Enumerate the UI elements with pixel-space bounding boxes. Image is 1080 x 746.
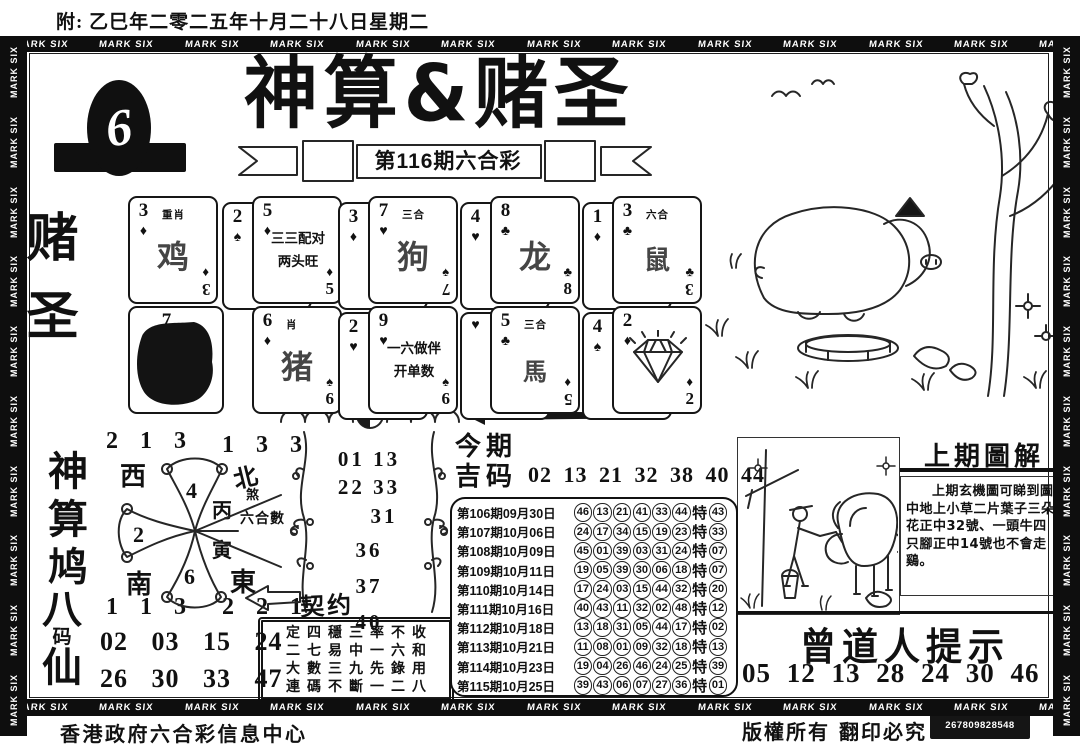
- mark-six-label: MARK SIX: [1062, 255, 1072, 307]
- result-number: 08: [593, 638, 612, 657]
- result-number: 24: [574, 523, 593, 542]
- mark-six-label: MARK SIX: [99, 39, 155, 50]
- result-row: 第113期10月21日110801093218特13: [457, 637, 733, 656]
- playing-card: 6♦ 肖 猪 ♠6: [252, 306, 342, 414]
- result-row: 第108期10月09日450139033124特07: [457, 541, 733, 560]
- result-number: 18: [593, 618, 612, 637]
- front-card: 5♣ 三合 馬 ♦5: [490, 306, 580, 414]
- result-number: 32: [633, 599, 652, 618]
- result-number: 32: [652, 638, 671, 657]
- result-special-number: 01: [709, 676, 728, 695]
- playing-card: 7: [128, 306, 224, 414]
- club-suit-icon: ♣: [623, 223, 632, 237]
- scroll-number-line: 31: [316, 504, 422, 529]
- result-special-number: 39: [709, 657, 728, 676]
- mark-six-label: MARK SIX: [9, 604, 19, 656]
- result-number: 03: [613, 580, 632, 599]
- result-number: 24: [593, 580, 612, 599]
- mark-six-label: MARK SIX: [9, 255, 19, 307]
- result-period: 第109期10月11日: [457, 561, 573, 580]
- result-number: 18: [672, 561, 691, 580]
- result-number: 33: [652, 503, 671, 522]
- heart-suit-icon: ♥: [471, 229, 479, 243]
- results-rows: 第106期09月30日461321413344特43第107期10月06日241…: [457, 503, 733, 695]
- special-label: 特: [692, 540, 707, 561]
- card-note: 三合: [402, 207, 425, 222]
- result-number: 43: [593, 676, 612, 695]
- footer-code: 267809828548: [945, 720, 1014, 731]
- club-suit-icon: ♣: [501, 333, 510, 347]
- pig-tree-sketch: [688, 56, 1066, 406]
- result-number: 36: [672, 676, 691, 695]
- result-number: 17: [672, 618, 691, 637]
- result-row: 第109期10月11日190539300618特07: [457, 561, 733, 580]
- result-number: 44: [652, 618, 671, 637]
- newspaper-page: 附: 乙巳年二零二五年十月二十八日星期二 MARK SIXMARK SIXMAR…: [0, 0, 1080, 746]
- result-number: 11: [613, 599, 632, 618]
- last-issue-underline: [900, 468, 1063, 472]
- mark-six-band-bottom: MARK SIXMARK SIXMARK SIXMARK SIXMARK SIX…: [0, 699, 1080, 716]
- mark-six-label: MARK SIX: [868, 702, 924, 713]
- front-card: 7♥ 三合 狗 ♠7: [368, 196, 458, 304]
- result-special-number: 07: [709, 542, 728, 561]
- result-period: 第110期10月14日: [457, 580, 573, 599]
- result-row: 第114期10月23日190426462425特39: [457, 657, 733, 676]
- front-card: 9♥ 一六做伴开单数 ♠6: [368, 306, 458, 414]
- plum-branch-icon: [420, 430, 450, 614]
- master-tip-numbers: 05 12 13 28 24 30 46: [742, 658, 1042, 689]
- ink-blot: [134, 316, 218, 408]
- contract-box: 定四穩三率不收二七易中一六和大數三九先錄用連碼不斷一二八: [258, 617, 454, 703]
- mark-six-label: MARK SIX: [270, 39, 326, 50]
- result-number: 19: [574, 561, 593, 580]
- logo-number: 6: [102, 97, 136, 159]
- mark-six-label: MARK SIX: [1062, 116, 1072, 168]
- mark-six-label: MARK SIX: [9, 325, 19, 377]
- mark-six-label: MARK SIX: [1062, 674, 1072, 726]
- result-number: 44: [652, 580, 671, 599]
- card-rat: 1♦ 3♣ 六合 鼠 ♣3: [582, 196, 700, 306]
- result-period: 第114期10月23日: [457, 657, 573, 676]
- heart-suit-icon: ♥: [349, 339, 357, 353]
- mark-six-label: MARK SIX: [441, 39, 497, 50]
- special-label: 特: [692, 502, 707, 523]
- result-number: 31: [652, 542, 671, 561]
- card-note: 六合: [646, 207, 669, 222]
- result-number: 13: [593, 503, 612, 522]
- result-number: 18: [672, 638, 691, 657]
- spade-suit-icon: ♠: [594, 339, 601, 353]
- card-horse: ♥ 5♣ 三合 馬 ♦5: [460, 306, 578, 416]
- scroll-number-line: 22 33: [316, 475, 422, 500]
- diamond-gem-icon: [626, 330, 690, 388]
- eight-code-row1: 02 03 15 24: [100, 627, 283, 657]
- card-diamond: 4♠ 2♦ ♦2: [582, 306, 700, 416]
- mark-six-label: MARK SIX: [612, 702, 668, 713]
- contract-row: 大數三九先錄用: [263, 660, 449, 678]
- mark-six-label: MARK SIX: [953, 702, 1009, 713]
- result-number: 11: [574, 638, 593, 657]
- result-number: 44: [672, 503, 691, 522]
- card-note: 肖: [286, 317, 298, 332]
- mark-six-band-top: MARK SIXMARK SIXMARK SIXMARK SIXMARK SIX…: [0, 36, 1080, 52]
- mark-six-label: MARK SIX: [783, 39, 839, 50]
- mark-six-label: MARK SIX: [1062, 325, 1072, 377]
- contract-row: 二七易中一六和: [263, 642, 449, 660]
- side-label-shensuan: 神算鸠: [40, 450, 88, 594]
- side-label-xian: 仙: [32, 648, 92, 688]
- playing-card: 3♦ 重肖 鸡 ♦3: [128, 196, 218, 304]
- result-number: 39: [613, 542, 632, 561]
- side-label-ba: 八: [32, 592, 92, 628]
- card-dog: 3♦ 7♥ 三合 狗 ♠7: [338, 196, 456, 306]
- last-issue-body: 上期玄機圖可睇到圖中地上小草二片葉子三朵花正中32號、一頭牛四只腳正中14號也不…: [906, 483, 1056, 571]
- front-card: 2♦ ♦2: [612, 306, 702, 414]
- mark-six-label: MARK SIX: [953, 39, 1009, 50]
- result-special-number: 02: [709, 618, 728, 637]
- contract-row: 定四穩三率不收: [263, 624, 449, 642]
- result-number: 19: [652, 523, 671, 542]
- special-label: 特: [692, 675, 707, 696]
- special-label: 特: [692, 560, 707, 581]
- result-number: 17: [574, 580, 593, 599]
- result-number: 41: [633, 503, 652, 522]
- mark-six-label: MARK SIX: [697, 39, 753, 50]
- result-number: 19: [574, 657, 593, 676]
- diamond-suit-icon: ♦: [594, 229, 601, 243]
- result-number: 13: [574, 618, 593, 637]
- result-number: 01: [613, 638, 632, 657]
- result-number: 05: [593, 561, 612, 580]
- result-number: 32: [672, 580, 691, 599]
- result-special-number: 13: [709, 638, 728, 657]
- result-number: 26: [613, 657, 632, 676]
- contract-row: 連碼不斷一二八: [263, 678, 449, 696]
- side-label-bamaxian: 八 码 仙: [32, 592, 92, 688]
- scroll-number-line: 01 13: [316, 447, 422, 472]
- mark-six-label: MARK SIX: [697, 702, 753, 713]
- result-row: 第111期10月16日404311320248特12: [457, 599, 733, 618]
- result-number: 05: [633, 618, 652, 637]
- result-period: 第115期10月25日: [457, 676, 573, 695]
- result-number: 46: [633, 657, 652, 676]
- front-card: 8♣ 龙 ♣8: [490, 196, 580, 304]
- result-number: 09: [633, 638, 652, 657]
- mark-six-label: MARK SIX: [783, 702, 839, 713]
- results-box: 第106期09月30日461321413344特43第107期10月06日241…: [450, 497, 738, 697]
- mark-six-label: MARK SIX: [184, 39, 240, 50]
- result-number: 30: [633, 561, 652, 580]
- card-bottom-index: ♦3: [202, 265, 211, 299]
- result-special-number: 12: [709, 599, 728, 618]
- lucky-numbers: 02 13 21 32 38 40 44: [528, 462, 765, 488]
- mark-six-label: MARK SIX: [355, 702, 411, 713]
- mark-six-label: MARK SIX: [612, 39, 668, 50]
- card-pig-card: 6♦ 肖 猪 ♠6: [252, 306, 342, 414]
- result-period: 第107期10月06日: [457, 522, 573, 541]
- mark-six-label: MARK SIX: [868, 39, 924, 50]
- result-number: 03: [633, 542, 652, 561]
- result-special-number: 20: [709, 580, 728, 599]
- result-number: 31: [613, 618, 632, 637]
- eight-code-row2: 26 30 33 47: [100, 664, 283, 694]
- result-number: 24: [652, 657, 671, 676]
- result-number: 45: [574, 542, 593, 561]
- card-note: 三合: [524, 317, 547, 332]
- result-period: 第108期10月09日: [457, 541, 573, 560]
- result-period: 第113期10月21日: [457, 637, 573, 656]
- special-label: 特: [692, 656, 707, 677]
- mark-six-label: MARK SIX: [9, 395, 19, 447]
- result-row: 第110期10月14日172403154432特20: [457, 580, 733, 599]
- mark-six-label: MARK SIX: [1062, 395, 1072, 447]
- result-row: 第112期10月18日131831054417特02: [457, 618, 733, 637]
- result-row: 第106期09月30日461321413344特43: [457, 503, 733, 522]
- result-number: 40: [574, 599, 593, 618]
- result-period: 第111期10月16日: [457, 599, 573, 618]
- result-number: 48: [672, 599, 691, 618]
- side-label-dusheng: 赌圣: [30, 210, 86, 366]
- result-number: 23: [672, 523, 691, 542]
- card-pair-16: 2♥ 9♥ 一六做伴开单数 ♠6: [338, 306, 456, 416]
- result-special-number: 33: [709, 523, 728, 542]
- result-period: 第112期10月18日: [457, 618, 573, 637]
- result-row: 第115期10月25日394306072736特01: [457, 676, 733, 695]
- diamond-suit-icon: ♦: [350, 229, 357, 243]
- special-label: 特: [692, 579, 707, 600]
- result-number: 15: [633, 523, 652, 542]
- result-number: 02: [652, 599, 671, 618]
- result-number: 06: [613, 676, 632, 695]
- footer-code-block: 267809828548: [930, 712, 1030, 739]
- mark-six-label: MARK SIX: [184, 702, 240, 713]
- tip-divider: [737, 611, 1065, 614]
- mark-six-label: MARK SIX: [9, 116, 19, 168]
- mark-six-label: MARK SIX: [441, 702, 497, 713]
- result-number: 01: [593, 542, 612, 561]
- result-number: 07: [633, 676, 652, 695]
- special-label: 特: [692, 521, 707, 542]
- special-label: 特: [692, 636, 707, 657]
- result-special-number: 07: [709, 561, 728, 580]
- mark-six-label: MARK SIX: [9, 674, 19, 726]
- mark-six-label: MARK SIX: [99, 702, 155, 713]
- result-number: 17: [593, 523, 612, 542]
- compass-flower: [103, 443, 288, 628]
- result-number: 39: [613, 561, 632, 580]
- special-label: 特: [692, 617, 707, 638]
- heart-suit-icon: ♥: [471, 317, 479, 331]
- result-row: 第107期10月06日241734151923特33: [457, 522, 733, 541]
- result-number: 15: [633, 580, 652, 599]
- result-number: 27: [652, 676, 671, 695]
- result-number: 34: [613, 523, 632, 542]
- result-period: 第106期09月30日: [457, 503, 573, 522]
- mark-six-label: MARK SIX: [1062, 465, 1072, 517]
- card-rooster: 3♦ 重肖 鸡 ♦3: [128, 196, 218, 304]
- farmer-buffalo-sketch: [737, 437, 900, 615]
- mark-six-label: MARK SIX: [9, 534, 19, 586]
- masthead-title: 神算&赌圣: [200, 54, 678, 136]
- footer-publisher: 香港政府六合彩信息中心: [60, 718, 308, 746]
- mark-six-label: MARK SIX: [9, 465, 19, 517]
- lucky-title: 今期吉码: [455, 433, 517, 493]
- result-number: 43: [593, 599, 612, 618]
- front-card: 3♣ 六合 鼠 ♣3: [612, 196, 702, 304]
- date-note: 附: 乙巳年二零二五年十月二十八日星期二: [56, 7, 429, 34]
- mark-six-label: MARK SIX: [355, 39, 411, 50]
- egg-six-logo: 6: [87, 80, 151, 176]
- mark-six-band-right: MARK SIXMARK SIXMARK SIXMARK SIXMARK SIX…: [1053, 36, 1080, 736]
- card-dragon: 4♥ 8♣ 龙 ♣8: [460, 196, 578, 306]
- mark-six-label: MARK SIX: [9, 46, 19, 98]
- mark-six-label: MARK SIX: [9, 186, 19, 238]
- card-pair-33: 2♠ 5♦ 三三配对两头旺 ♦5: [222, 196, 340, 306]
- mark-six-label: MARK SIX: [1062, 186, 1072, 238]
- result-number: 46: [574, 503, 593, 522]
- special-label: 特: [692, 598, 707, 619]
- scroll-number-line: 36: [316, 538, 422, 563]
- result-number: 39: [574, 676, 593, 695]
- front-card: 5♦ 三三配对两头旺 ♦5: [252, 196, 342, 304]
- footer-copyright: 版權所有 翻印必究: [742, 716, 927, 745]
- result-special-number: 43: [709, 503, 728, 522]
- result-number: 04: [593, 657, 612, 676]
- card-blot: 7: [128, 306, 228, 416]
- mark-six-label: MARK SIX: [1062, 534, 1072, 586]
- result-number: 21: [613, 503, 632, 522]
- result-number: 24: [672, 542, 691, 561]
- card-note: 重肖: [162, 207, 185, 222]
- spade-suit-icon: ♠: [234, 229, 241, 243]
- result-number: 06: [652, 561, 671, 580]
- mark-six-label: MARK SIX: [1062, 46, 1072, 98]
- result-number: 25: [672, 657, 691, 676]
- mark-six-label: MARK SIX: [526, 702, 582, 713]
- issue-banner: 第116期六合彩: [355, 145, 541, 175]
- mark-six-label: MARK SIX: [1062, 604, 1072, 656]
- last-issue-box: 上期玄機圖可睇到圖中地上小草二片葉子三朵花正中32號、一頭牛四只腳正中14號也不…: [900, 476, 1062, 596]
- mark-six-label: MARK SIX: [526, 39, 582, 50]
- mark-six-band-left: MARK SIXMARK SIXMARK SIXMARK SIXMARK SIX…: [0, 36, 27, 736]
- mark-six-label: MARK SIX: [270, 702, 326, 713]
